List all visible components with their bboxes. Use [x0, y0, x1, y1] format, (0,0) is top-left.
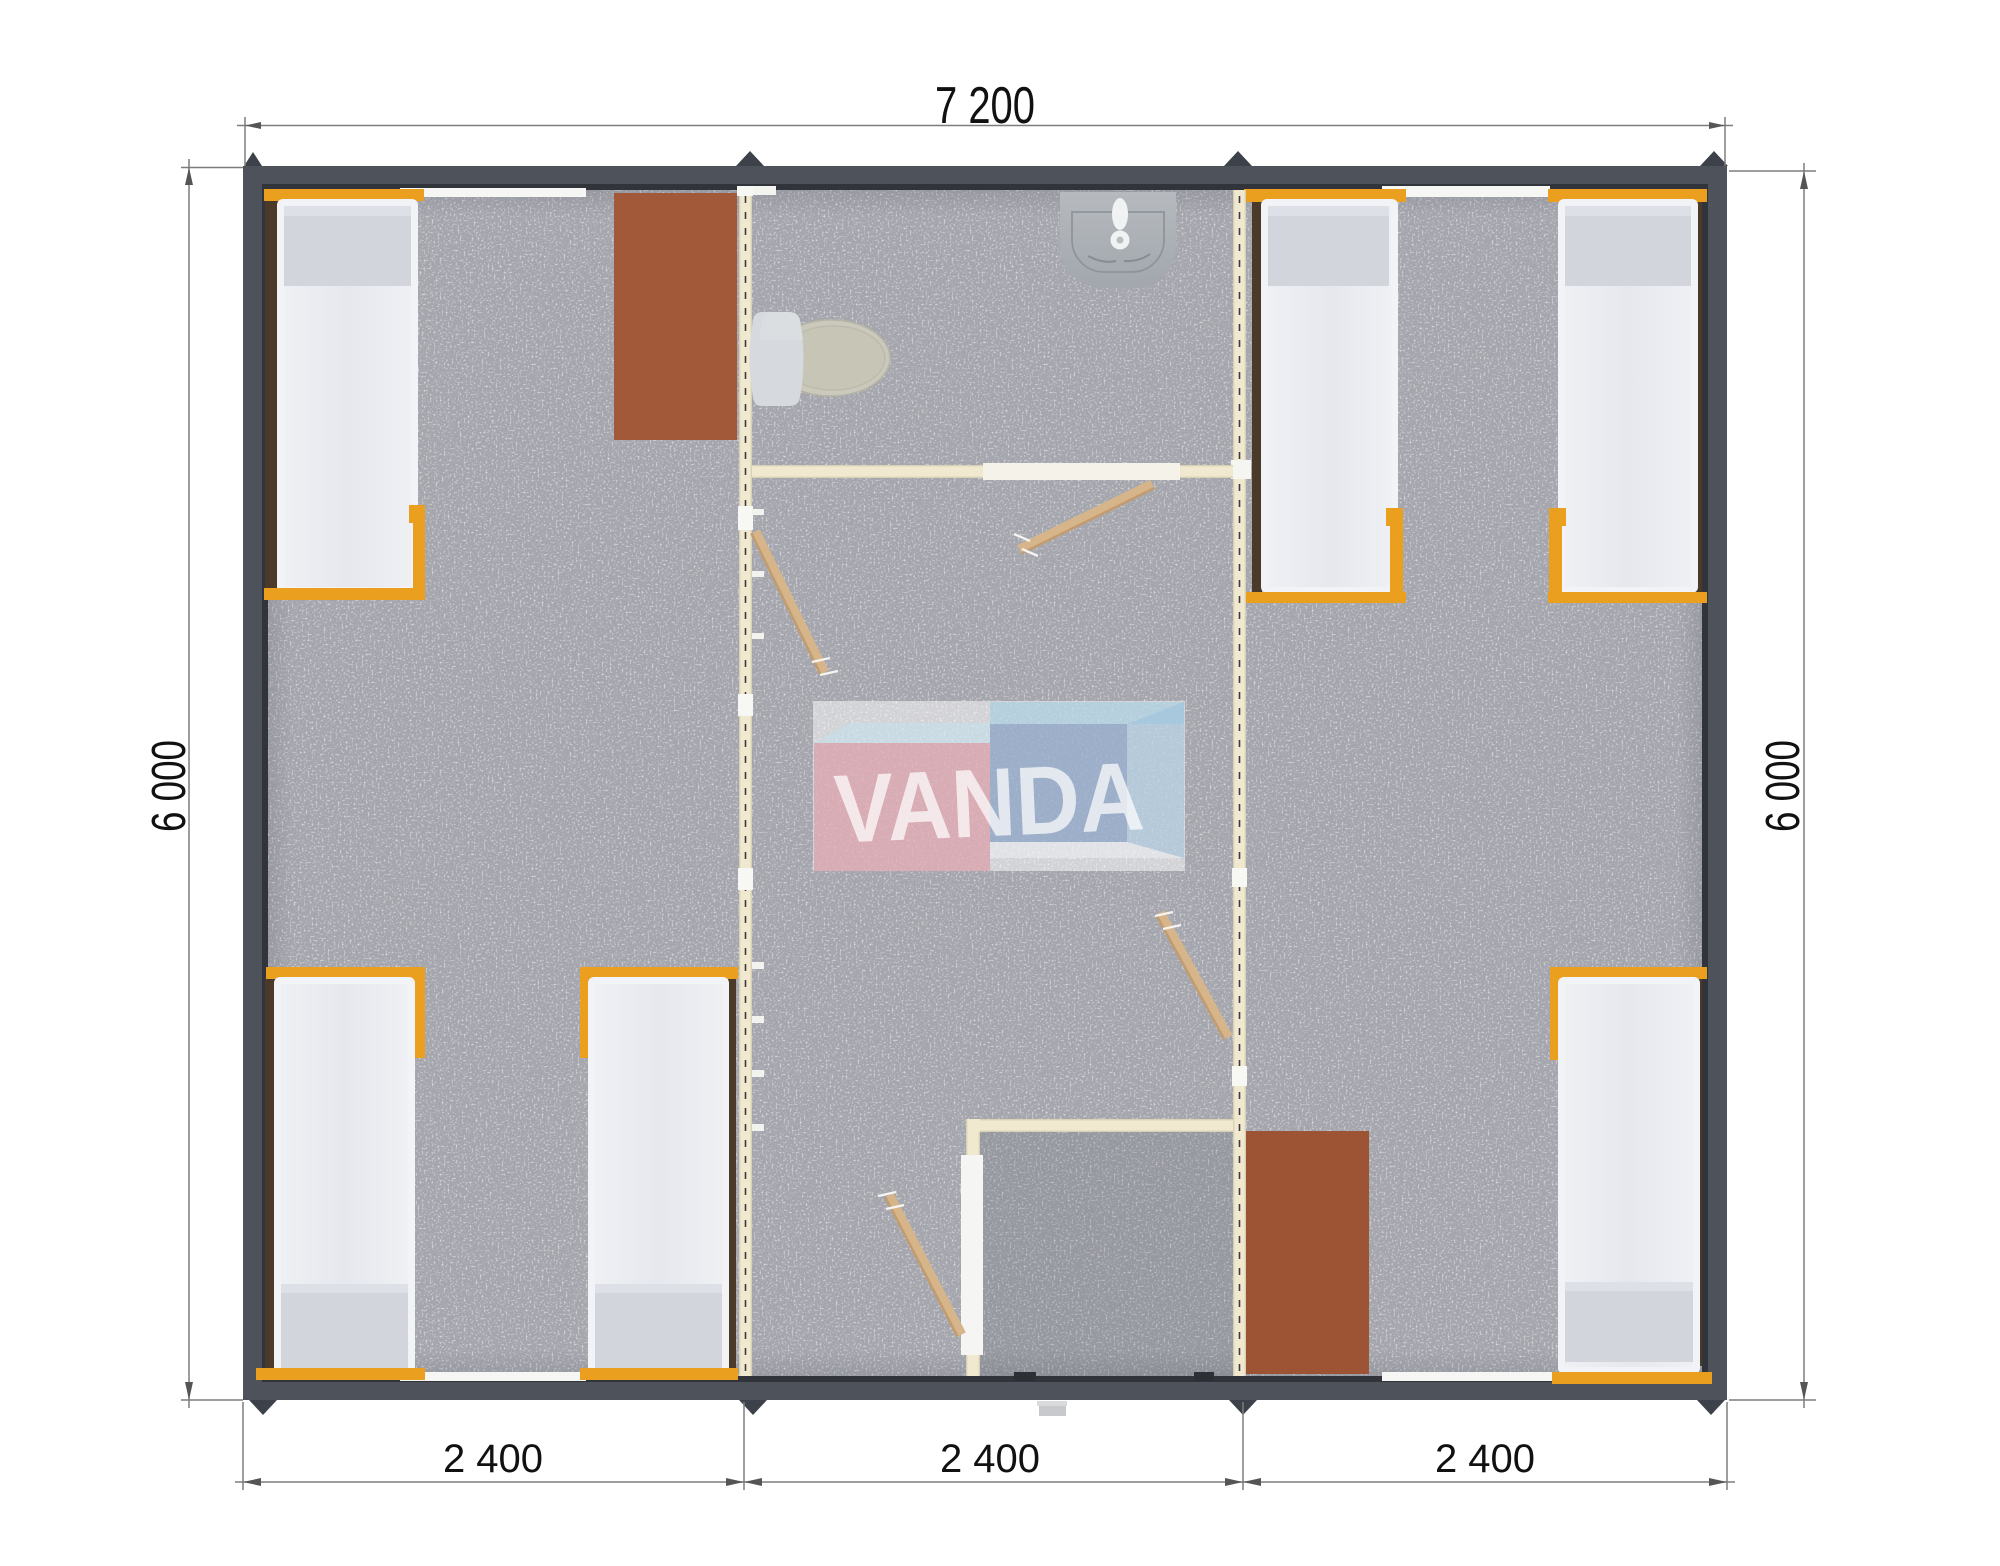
svg-text:7 200: 7 200	[935, 77, 1035, 135]
svg-text:2 400: 2 400	[443, 1437, 543, 1481]
svg-text:2 400: 2 400	[1435, 1437, 1535, 1481]
svg-text:6 000: 6 000	[1757, 740, 1810, 832]
svg-text:2 400: 2 400	[940, 1437, 1040, 1481]
svg-text:6 000: 6 000	[143, 740, 196, 832]
svg-text:VANDA: VANDA	[832, 741, 1146, 863]
